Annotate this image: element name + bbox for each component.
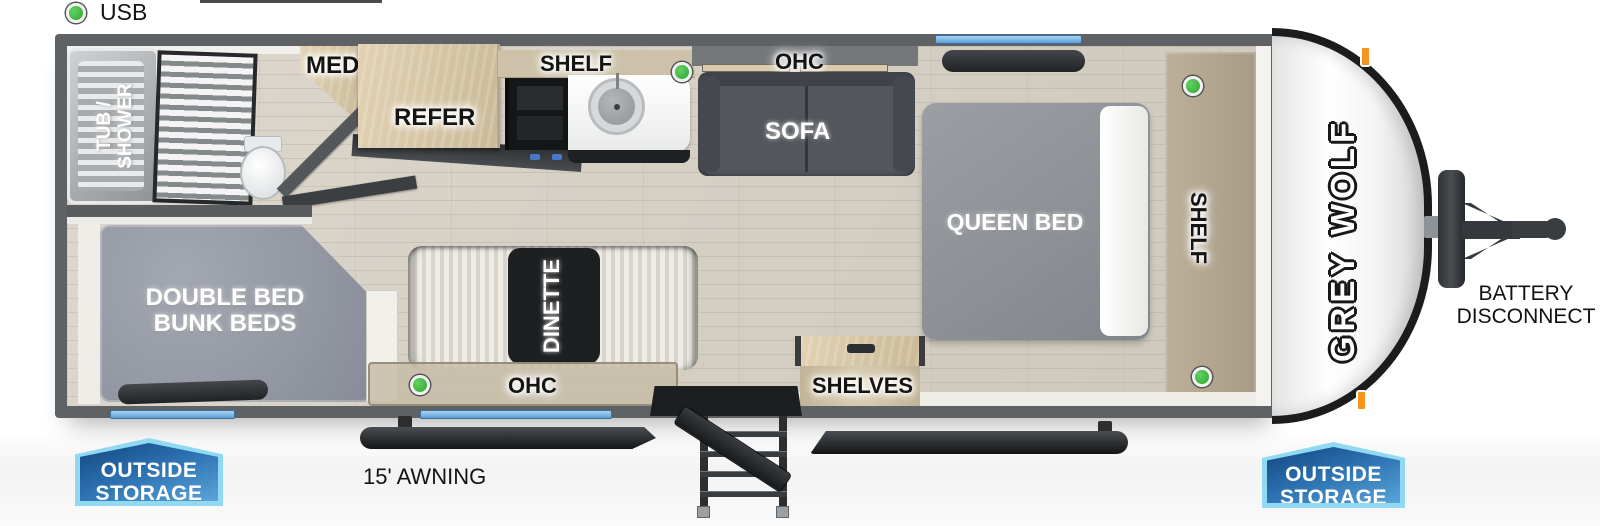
outside-storage-left-line1: OUTSIDE bbox=[80, 459, 218, 482]
kitchen-shelf-label: SHELF bbox=[540, 52, 612, 76]
brand-logo-wrap: GREY WOLF bbox=[1324, 85, 1380, 395]
stove-grate2 bbox=[517, 116, 563, 140]
outside-storage-badge-right: OUTSIDE STORAGE bbox=[1262, 442, 1405, 508]
bed-headboard-shelf bbox=[942, 50, 1085, 72]
outside-storage-right-line2: STORAGE bbox=[1267, 486, 1400, 509]
kitchen-knob2 bbox=[552, 154, 562, 160]
outside-storage-right-line1: OUTSIDE bbox=[1267, 463, 1400, 486]
bunkroom-wall bbox=[67, 205, 312, 217]
outside-storage-badge-right-inner: OUTSIDE STORAGE bbox=[1267, 447, 1400, 503]
faucet bbox=[616, 73, 619, 89]
dinette-label: DINETTE bbox=[539, 259, 564, 353]
entry-mat bbox=[650, 386, 802, 416]
dinette-window-bottom bbox=[420, 410, 612, 419]
refer-label: REFER bbox=[394, 106, 475, 130]
kitchen-base-shadow bbox=[568, 150, 690, 163]
usb-dot-kitchen bbox=[672, 62, 692, 82]
brand-logo: GREY WOLF bbox=[1324, 118, 1361, 362]
usb-legend-label: USB bbox=[100, 0, 147, 24]
shelves-handle bbox=[847, 344, 875, 353]
outside-storage-badge-left-inner: OUTSIDE STORAGE bbox=[80, 443, 218, 501]
sofa-armrest-left bbox=[698, 76, 720, 172]
hitch-coupler-ball bbox=[1544, 218, 1566, 240]
sink bbox=[588, 78, 645, 135]
usb-dot-bedroom-top bbox=[1183, 76, 1203, 96]
front-wall-liner bbox=[1256, 46, 1271, 406]
stove-grate bbox=[517, 86, 563, 110]
queen-bed-pillow bbox=[1100, 106, 1148, 336]
kitchen-knob bbox=[530, 154, 540, 160]
battery-disconnect-label: BATTERY DISCONNECT bbox=[1426, 282, 1600, 328]
marker-light-top bbox=[1360, 46, 1371, 67]
battery-label-line1: BATTERY bbox=[1426, 282, 1600, 305]
bunk-window-bottom bbox=[110, 410, 235, 419]
shelves-label: SHELVES bbox=[812, 374, 913, 398]
queen-bed-label: QUEEN BED bbox=[930, 210, 1100, 234]
ohc-bottom-label: OHC bbox=[508, 374, 557, 398]
shelves-box-lid bbox=[795, 336, 925, 366]
awning-bar-left bbox=[360, 427, 656, 449]
floorplan-diagram: USB DOUBLE BED BUNK BEDS TUB / SHOWER ME… bbox=[0, 0, 1600, 526]
bedroom-shelf-label: SHELF bbox=[1186, 192, 1210, 264]
step-foot-left bbox=[697, 506, 710, 518]
bunk-label-line1: DOUBLE BED bbox=[110, 286, 340, 310]
battery-label-line2: DISCONNECT bbox=[1426, 305, 1600, 328]
bunk-label-line2: BUNK BEDS bbox=[110, 312, 340, 336]
step-foot-right bbox=[776, 506, 789, 518]
outside-storage-badge-left: OUTSIDE STORAGE bbox=[75, 438, 223, 506]
usb-dot-bedroom-bottom bbox=[1192, 367, 1212, 387]
crop-artifact bbox=[200, 0, 382, 3]
sofa-armrest-right bbox=[893, 76, 915, 172]
usb-dot-dinette bbox=[410, 375, 430, 395]
sink-drain bbox=[614, 104, 620, 110]
awning-bracket-left bbox=[398, 416, 412, 428]
entry-door-panel bbox=[673, 405, 792, 493]
sofa-label: SOFA bbox=[765, 120, 830, 144]
stove bbox=[505, 78, 568, 150]
usb-legend: USB bbox=[64, 0, 184, 28]
tub-shower-label: TUB / SHOWER bbox=[94, 46, 146, 206]
refrigerator bbox=[358, 44, 500, 148]
bedroom-window-top bbox=[935, 35, 1082, 44]
outside-storage-left-line2: STORAGE bbox=[80, 482, 218, 505]
med-label: MED bbox=[306, 54, 359, 78]
hitch-bumper-bar bbox=[1438, 170, 1465, 288]
awning-bar-right bbox=[810, 431, 1128, 454]
usb-legend-icon bbox=[66, 3, 86, 23]
step-rung4 bbox=[700, 492, 787, 497]
ohc-top-label: OHC bbox=[775, 50, 824, 74]
bunkroom-wall-trim bbox=[67, 217, 312, 224]
awning-label: 15' AWNING bbox=[363, 465, 486, 489]
bunk-surround bbox=[78, 224, 100, 404]
